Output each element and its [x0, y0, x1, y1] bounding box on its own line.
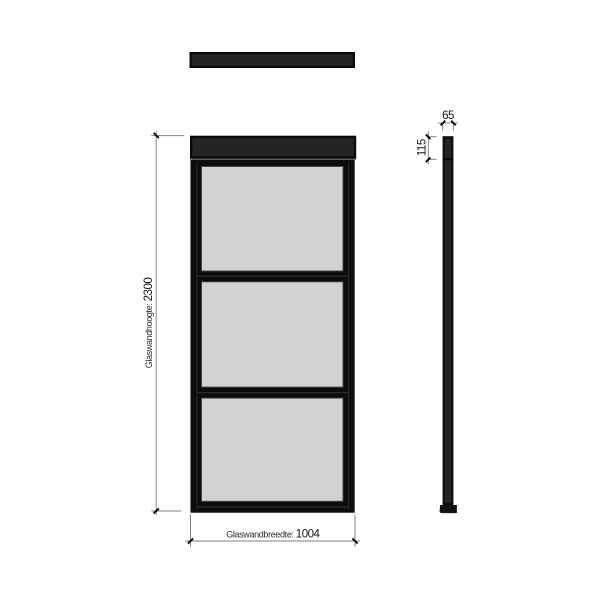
- svg-text:Glaswandhoogte: 2300: Glaswandhoogte: 2300: [143, 278, 155, 369]
- svg-text:115: 115: [416, 139, 428, 156]
- svg-text:Glaswandbreedte: 1004: Glaswandbreedte: 1004: [226, 529, 320, 541]
- svg-text:65: 65: [442, 110, 454, 122]
